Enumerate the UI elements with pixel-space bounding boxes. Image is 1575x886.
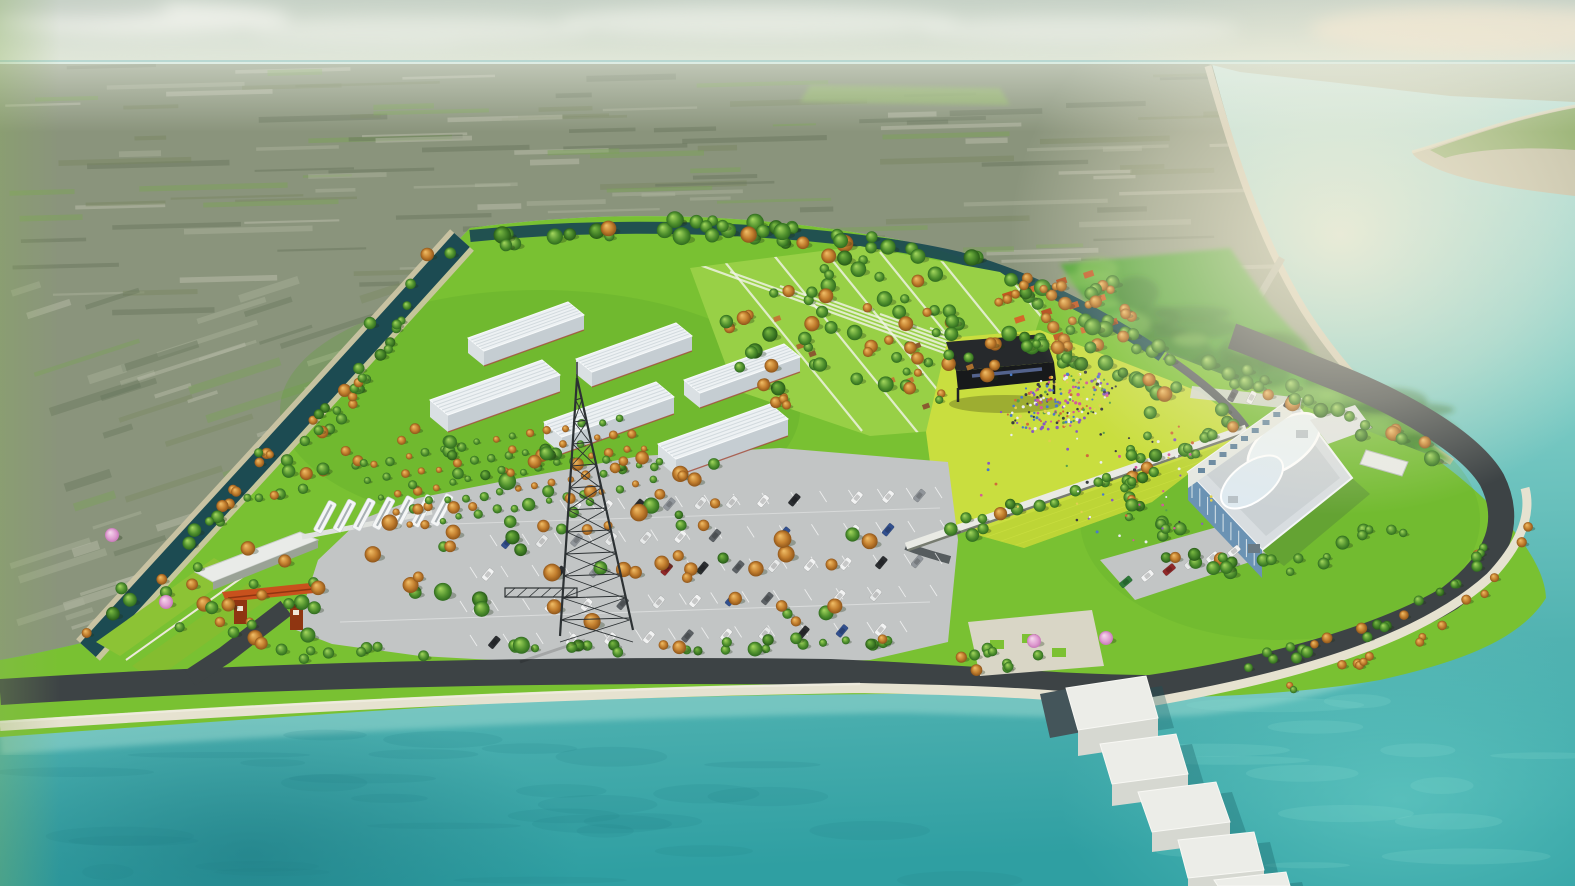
tree <box>509 433 516 440</box>
tree <box>474 601 490 617</box>
tree <box>1399 529 1407 537</box>
tree <box>205 517 214 526</box>
tree <box>818 288 833 303</box>
crowd-person <box>1068 421 1071 424</box>
cloud <box>560 6 960 38</box>
tree <box>1290 686 1297 693</box>
tree <box>577 440 585 448</box>
tree <box>370 461 377 468</box>
tree <box>582 524 593 535</box>
crowd-person <box>1042 422 1045 425</box>
crowd-person <box>1102 493 1105 496</box>
crowd-person <box>1039 401 1042 404</box>
tree <box>676 520 687 531</box>
ripple-light <box>1410 777 1473 794</box>
crowd-person <box>1017 505 1019 507</box>
tree <box>356 647 366 657</box>
tree <box>266 450 274 458</box>
crowd-person <box>1049 376 1052 379</box>
tree <box>969 650 980 661</box>
tree <box>1170 552 1181 563</box>
crowd-person <box>1100 461 1103 464</box>
tree <box>105 528 119 542</box>
tree <box>1437 621 1447 631</box>
crowd-person <box>1007 414 1009 416</box>
ripple <box>283 730 367 741</box>
tree <box>985 337 997 349</box>
tree <box>734 362 745 373</box>
crowd-person <box>1072 416 1074 418</box>
crowd-person <box>1210 499 1213 502</box>
crowd-person <box>1069 398 1072 401</box>
crowd-person <box>1066 465 1068 467</box>
tree <box>833 233 848 248</box>
crowd-person <box>1046 405 1049 408</box>
crowd-person <box>1026 423 1029 426</box>
tree <box>776 600 788 612</box>
tree <box>299 654 309 664</box>
tree <box>928 267 943 282</box>
tree <box>900 294 909 303</box>
crowd-person <box>1044 391 1047 394</box>
tree <box>418 650 429 661</box>
tree <box>504 515 517 528</box>
crowd-person <box>1060 392 1063 395</box>
tree <box>627 429 636 438</box>
tree <box>193 562 203 572</box>
tree <box>1517 537 1527 547</box>
tree <box>790 633 802 645</box>
tree <box>405 279 416 290</box>
tree <box>254 448 263 457</box>
tree <box>1286 642 1296 652</box>
crowd-person <box>1077 490 1079 492</box>
crowd-person <box>1075 418 1078 421</box>
tree <box>609 430 618 439</box>
tree <box>480 492 489 501</box>
tree <box>522 498 535 511</box>
crowd-person <box>1059 412 1062 415</box>
crowd-person <box>1210 495 1213 498</box>
ripple <box>655 845 753 857</box>
horizon-haze <box>0 62 1575 132</box>
tree <box>300 467 313 480</box>
tree <box>1021 340 1033 352</box>
crowd-person <box>1028 411 1030 413</box>
crowd-person <box>1080 511 1082 513</box>
tree <box>932 328 941 337</box>
tree <box>945 314 959 328</box>
tree <box>740 226 756 242</box>
tree <box>543 426 551 434</box>
tree <box>960 512 971 523</box>
photo-streak <box>800 206 833 212</box>
crowd-person <box>1086 454 1089 457</box>
tree <box>187 523 201 537</box>
ripple <box>367 823 521 829</box>
tree <box>392 508 399 515</box>
tree <box>884 335 893 344</box>
tree <box>397 436 406 445</box>
tree <box>421 248 434 261</box>
tree <box>531 482 538 489</box>
tree <box>1050 498 1060 508</box>
tree <box>944 522 958 536</box>
tree <box>1286 567 1295 576</box>
tree <box>231 486 241 496</box>
tree <box>278 554 291 567</box>
crowd-person <box>1026 403 1028 405</box>
crowd-person <box>1066 401 1069 404</box>
tree <box>765 359 779 373</box>
tree <box>1318 558 1330 570</box>
crowd-person <box>1201 523 1203 525</box>
ripple <box>215 868 330 876</box>
tree <box>762 327 777 342</box>
tree <box>420 520 429 529</box>
crowd-person <box>1038 383 1040 385</box>
crowd-person <box>1000 411 1002 413</box>
crowd-person <box>1012 405 1015 408</box>
tree <box>1356 623 1367 634</box>
tree <box>722 637 732 647</box>
crowd-person <box>1035 390 1037 392</box>
tree <box>717 220 729 232</box>
tree <box>610 463 621 474</box>
tree <box>748 642 763 657</box>
crowd-person <box>1022 405 1025 408</box>
tree <box>106 607 120 621</box>
tree <box>629 566 642 579</box>
ripple <box>538 795 658 814</box>
crowd-person <box>1047 412 1050 415</box>
tree <box>863 347 873 357</box>
tree <box>1523 522 1533 532</box>
crowd-person <box>1014 399 1017 402</box>
tree <box>762 634 773 645</box>
tree <box>616 485 624 493</box>
tree <box>1093 477 1103 487</box>
tree <box>215 617 225 627</box>
tree <box>745 346 758 359</box>
tree <box>710 498 720 508</box>
crowd-person <box>1020 396 1023 399</box>
crowd-person <box>1062 417 1065 420</box>
tree <box>720 315 733 328</box>
photo-streak <box>119 150 161 157</box>
tree <box>827 598 842 613</box>
tree <box>449 479 456 486</box>
crowd-person <box>1078 410 1080 412</box>
tree <box>866 231 878 243</box>
gate-kiosk <box>234 600 247 624</box>
tree <box>911 352 924 365</box>
tree <box>737 311 751 325</box>
crowd-person <box>1035 403 1038 406</box>
tree <box>543 564 561 582</box>
tree <box>317 462 330 475</box>
crowd-person <box>1040 406 1043 409</box>
tree <box>311 581 326 596</box>
tree <box>410 423 421 434</box>
tree <box>816 306 828 318</box>
ripple <box>368 749 478 759</box>
tree <box>298 484 308 494</box>
tree <box>1206 561 1220 575</box>
tree <box>406 453 412 459</box>
ripple <box>809 821 930 840</box>
crowd-person <box>1033 418 1035 420</box>
tree <box>360 459 368 467</box>
tree <box>378 495 384 501</box>
tree <box>971 664 983 676</box>
tree <box>850 373 863 386</box>
tree <box>480 470 490 480</box>
tree <box>243 494 251 502</box>
crowd-person <box>1041 426 1044 429</box>
crowd-person <box>1038 385 1041 388</box>
crowd-person <box>1086 481 1089 484</box>
tree <box>935 396 943 404</box>
tree <box>1379 622 1389 632</box>
tree <box>505 530 519 544</box>
tree <box>677 470 687 480</box>
tree <box>748 561 763 576</box>
crowd-person <box>1025 426 1028 429</box>
tree <box>444 247 456 259</box>
tree <box>994 507 1007 520</box>
crowd-person <box>1012 426 1015 429</box>
tree <box>474 509 483 518</box>
tree <box>1399 610 1409 620</box>
tree <box>878 634 888 644</box>
tree <box>819 639 827 647</box>
tree <box>978 514 988 524</box>
crowd-person <box>1016 422 1018 424</box>
tree <box>473 438 479 444</box>
ripple <box>383 731 502 748</box>
crowd-person <box>1083 417 1086 420</box>
tree <box>537 520 549 532</box>
tree <box>804 316 819 331</box>
tree <box>782 400 791 409</box>
tree <box>156 574 167 585</box>
tree <box>778 546 795 563</box>
tree <box>392 319 402 329</box>
tree <box>878 376 894 392</box>
tree <box>1357 530 1367 540</box>
crowd-person <box>987 468 990 471</box>
crowd-person <box>1047 428 1050 431</box>
tree <box>528 455 542 469</box>
tree <box>796 236 809 249</box>
tree <box>508 445 516 453</box>
tree <box>630 504 648 522</box>
crowd-person <box>1162 490 1164 492</box>
tree <box>282 464 295 477</box>
plaza-lawn-square <box>1052 648 1066 657</box>
tree <box>641 446 647 452</box>
tree <box>186 578 198 590</box>
tree <box>353 363 364 374</box>
masterplan-rendering-svg <box>0 0 1575 886</box>
tree <box>782 285 794 297</box>
tree <box>123 593 137 607</box>
tree <box>865 639 876 650</box>
tree <box>1127 477 1136 486</box>
tree <box>462 495 470 503</box>
crowd-person <box>1058 420 1060 422</box>
tree <box>623 446 630 453</box>
tree <box>563 228 576 241</box>
tree <box>526 429 534 437</box>
crowd-person <box>1035 416 1038 419</box>
tree <box>877 291 893 307</box>
crowd-person <box>1076 408 1079 411</box>
crowd-person <box>1046 385 1049 388</box>
tree <box>300 436 310 446</box>
tree <box>365 546 381 562</box>
tree <box>863 303 872 312</box>
tree <box>446 525 461 540</box>
tree <box>769 288 778 297</box>
tree <box>824 270 834 280</box>
tree <box>635 451 649 465</box>
tree <box>1337 660 1347 670</box>
tree <box>364 477 371 484</box>
crowd-person <box>1048 381 1051 384</box>
photo-streak <box>477 203 521 210</box>
ripple-light <box>1382 848 1551 864</box>
ripple <box>351 794 428 803</box>
ripple-light <box>1324 694 1391 708</box>
tree <box>903 382 916 395</box>
crowd-person <box>1165 496 1167 498</box>
tree <box>612 647 623 658</box>
tree <box>1415 638 1424 647</box>
crowd-person <box>995 483 998 486</box>
tree <box>556 524 567 535</box>
tree <box>308 601 321 614</box>
crowd-person <box>1138 504 1140 506</box>
tree <box>705 228 719 242</box>
tree <box>826 559 838 571</box>
tree <box>421 448 430 457</box>
tree <box>911 275 924 288</box>
crowd-person <box>1039 394 1042 397</box>
tree <box>270 491 279 500</box>
crowd-person <box>1145 540 1148 543</box>
tree <box>487 454 495 462</box>
tree <box>283 598 294 609</box>
tree <box>964 249 980 265</box>
tree <box>1414 595 1424 605</box>
tree <box>1262 647 1272 657</box>
crowd-person <box>1038 418 1040 420</box>
tree <box>602 456 610 464</box>
crowd-person <box>1047 399 1050 402</box>
tree <box>547 599 562 614</box>
tree <box>559 440 567 448</box>
ripple <box>127 752 310 758</box>
tree <box>1336 536 1350 550</box>
crowd-person <box>1072 420 1074 422</box>
tree <box>1099 631 1113 645</box>
aerial-rendering <box>0 0 1575 886</box>
tree <box>910 249 925 264</box>
ripple-light <box>1395 813 1503 829</box>
tree <box>159 595 173 609</box>
tree <box>425 496 433 504</box>
crowd-person <box>1165 509 1167 511</box>
tree <box>294 595 309 610</box>
tree <box>403 301 412 310</box>
crowd-person <box>1011 421 1014 424</box>
tree <box>1310 640 1319 649</box>
tree <box>547 228 563 244</box>
crowd-person <box>1051 389 1053 391</box>
ripple <box>68 836 198 846</box>
tree <box>757 378 770 391</box>
crowd-person <box>1075 430 1078 433</box>
crowd-person <box>1048 388 1051 391</box>
crowd-person <box>1069 424 1071 426</box>
crowd-person <box>1024 393 1027 396</box>
tree <box>406 521 412 527</box>
tree <box>659 640 669 650</box>
tree <box>1450 580 1459 589</box>
crowd-person <box>1045 421 1047 423</box>
crowd-person <box>1049 397 1052 400</box>
tree <box>115 582 127 594</box>
tree <box>401 469 410 478</box>
crowd-person <box>1178 521 1180 523</box>
crowd-person <box>1011 411 1014 414</box>
tree <box>729 592 742 605</box>
crowd-person <box>1115 450 1117 452</box>
crowd-person <box>1046 393 1048 395</box>
tree <box>222 598 236 612</box>
tree <box>542 485 554 497</box>
crowd-person <box>1118 455 1121 458</box>
tree <box>514 543 527 556</box>
crowd-person <box>1034 427 1037 430</box>
tree <box>1362 632 1372 642</box>
tree <box>847 325 863 341</box>
tree <box>914 369 922 377</box>
crowd-person <box>1081 411 1084 414</box>
tree <box>447 501 460 514</box>
tree <box>977 523 988 534</box>
tree <box>1480 590 1488 598</box>
tree <box>364 317 376 329</box>
crowd-person <box>1043 410 1046 413</box>
tree <box>619 456 629 466</box>
tree <box>1070 485 1081 496</box>
tree <box>341 446 351 456</box>
photo-streak <box>965 137 1007 143</box>
gate-kiosk-sign <box>293 610 299 615</box>
tree <box>813 357 827 371</box>
tree <box>247 620 257 630</box>
crowd-person <box>1050 420 1052 422</box>
tree <box>865 242 877 254</box>
tree <box>1301 646 1313 658</box>
crowd-person <box>1161 504 1164 507</box>
crowd-person <box>1040 398 1043 401</box>
crowd-person <box>1103 432 1105 434</box>
tree <box>276 644 288 656</box>
